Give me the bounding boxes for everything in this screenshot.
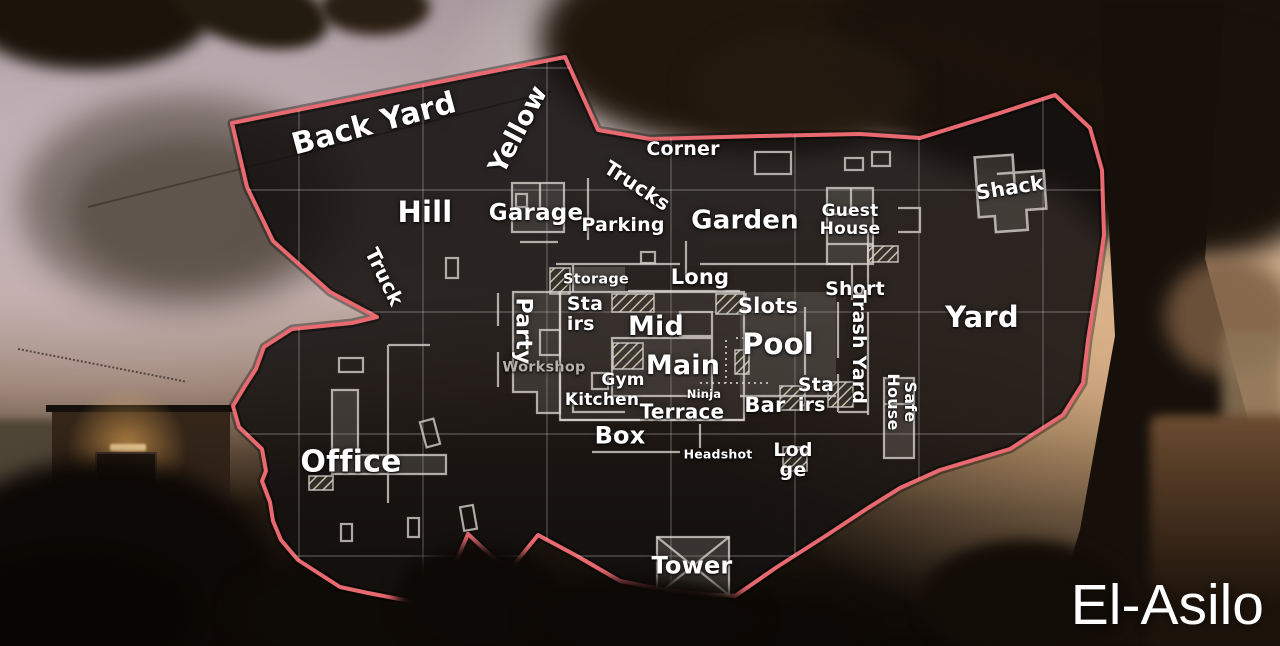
callout-yard: Yard [945, 302, 1019, 332]
callout-long: Long [671, 266, 730, 288]
callout-office: Office [300, 446, 401, 478]
callout-corner: Corner [646, 140, 719, 160]
callout-stairs-right: Sta irs [798, 376, 834, 416]
callout-terrace: Terrace [640, 402, 725, 423]
callout-parking: Parking [581, 216, 664, 236]
callout-garden: Garden [691, 207, 799, 234]
callout-safe-house: Safe House [884, 373, 918, 430]
callout-party: Party [511, 297, 534, 364]
callout-workshop: Workshop [502, 360, 585, 375]
callout-main: Main [646, 352, 720, 380]
callout-stairs-left: Sta irs [567, 295, 603, 335]
callout-guest-house: Guest House [820, 203, 881, 239]
callout-box: Box [595, 423, 646, 448]
callout-pool: Pool [742, 329, 814, 359]
callout-ninja: Ninja [687, 388, 721, 400]
callout-mid: Mid [628, 313, 684, 341]
callout-bar: Bar [744, 394, 785, 416]
callout-slots: Slots [738, 295, 798, 317]
map-title: El-Asilo [1071, 572, 1264, 638]
callout-hill: Hill [398, 197, 453, 227]
screenshot-root: Back Yard Yellow Corner Trucks Hill Gara… [0, 0, 1280, 646]
callout-garage: Garage [489, 201, 584, 225]
callout-tower: Tower [652, 553, 733, 578]
callout-kitchen: Kitchen [565, 392, 639, 410]
callout-headshot: Headshot [684, 447, 753, 460]
callout-gym: Gym [601, 372, 644, 390]
callout-trash-yard: Trash Yard [848, 290, 868, 404]
callout-lodge: Lod ge [773, 441, 812, 481]
callout-storage: Storage [563, 272, 629, 287]
